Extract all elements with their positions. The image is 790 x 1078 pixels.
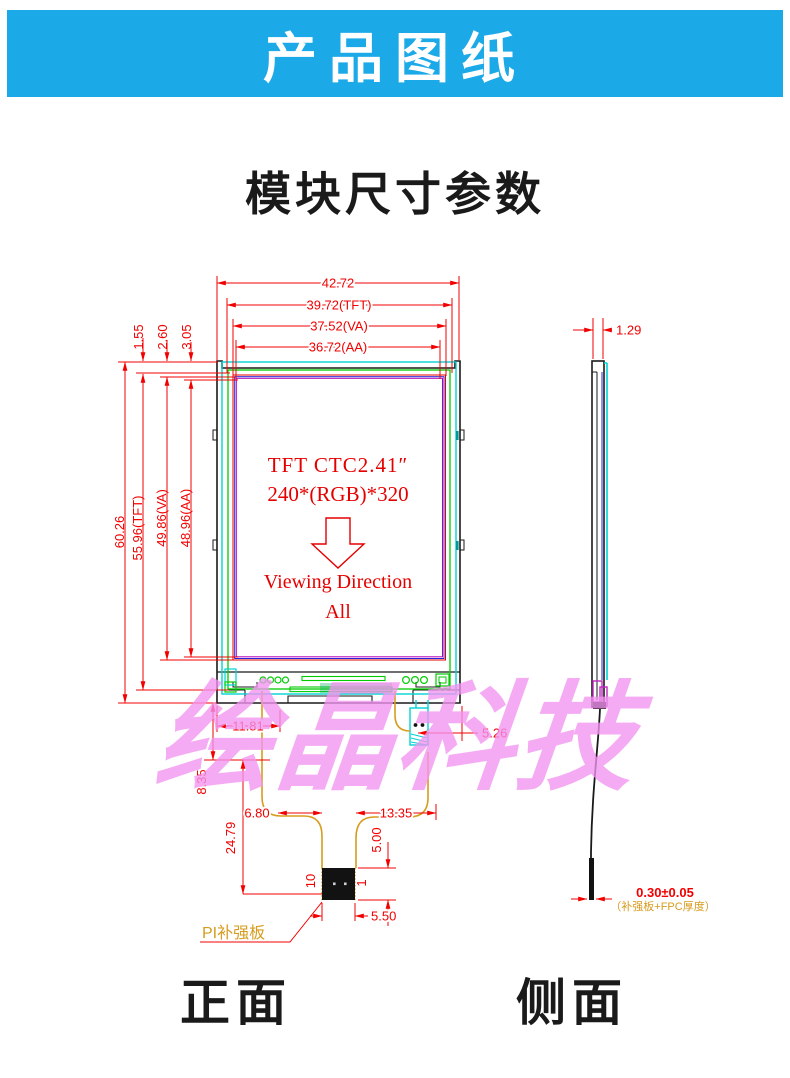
front-dimensions: [118, 276, 478, 942]
dim-fpc-fold: 8.35: [194, 769, 209, 794]
dim-top-gap-tft: 1.55: [131, 324, 146, 349]
dim-width-aa: 36.72(AA): [309, 340, 368, 355]
side-view-caption: 侧面: [516, 963, 628, 1035]
pin-label-1: 1: [354, 879, 369, 886]
backlight-connector: [410, 700, 428, 745]
display-line4: All: [325, 601, 351, 623]
dim-width-outline: 42.72: [322, 276, 355, 291]
dim-bottom-left: 11.81: [232, 719, 264, 734]
side-view-body: [589, 361, 607, 900]
display-line3: Viewing Direction: [264, 571, 412, 593]
dim-fpc-thickness-note: （补强板+FPC厚度）: [610, 899, 715, 913]
dim-width-va: 37.52(VA): [310, 319, 368, 334]
front-glass-layers: [222, 362, 459, 694]
dim-top-gap-aa: 3.05: [179, 324, 194, 349]
side-view-labels: 1.29 0.30±0.05 （补强板+FPC厚度）: [610, 323, 715, 914]
dimension-drawing: 42.72 39.72(TFT) 37.52(VA) 36.72(AA) 1.5…: [0, 0, 790, 1078]
display-area-text: TFT CTC2.41″ 240*(RGB)*320 Viewing Direc…: [264, 453, 412, 623]
dim-stiffener-height: 5.00: [369, 827, 384, 852]
dim-height-tft: 55.96(TFT): [130, 495, 145, 560]
dim-top-gap-va: 2.60: [155, 324, 170, 349]
front-module-outline: [213, 361, 464, 703]
dim-width-tft: 39.72(TFT): [306, 298, 371, 313]
dim-neck-right: 13.35: [380, 806, 413, 821]
dim-fpc-thickness: 0.30±0.05: [636, 885, 694, 900]
dim-stiffener-width: 5.50: [371, 909, 396, 924]
display-line2: 240*(RGB)*320: [267, 482, 408, 506]
dim-height-va: 49.86(VA): [154, 489, 169, 547]
stiffener-label: PI补强板: [202, 924, 265, 942]
dim-connector-offset: 5.26: [482, 726, 507, 741]
dim-height-outline: 60.26: [112, 516, 127, 549]
dim-neck-left: 6.80: [244, 806, 269, 821]
front-view-caption: 正面: [180, 963, 292, 1035]
dim-height-aa: 48.96(AA): [178, 489, 193, 548]
product-drawing-page: 产品图纸 模块尺寸参数: [0, 0, 790, 1078]
dim-fpc-length: 24.79: [223, 822, 238, 855]
viewing-direction-arrow: [312, 518, 364, 568]
pin-label-10: 10: [303, 874, 318, 888]
display-line1: TFT CTC2.41″: [268, 453, 409, 477]
pi-stiffener-block: [322, 868, 355, 900]
dim-thickness: 1.29: [616, 323, 641, 338]
